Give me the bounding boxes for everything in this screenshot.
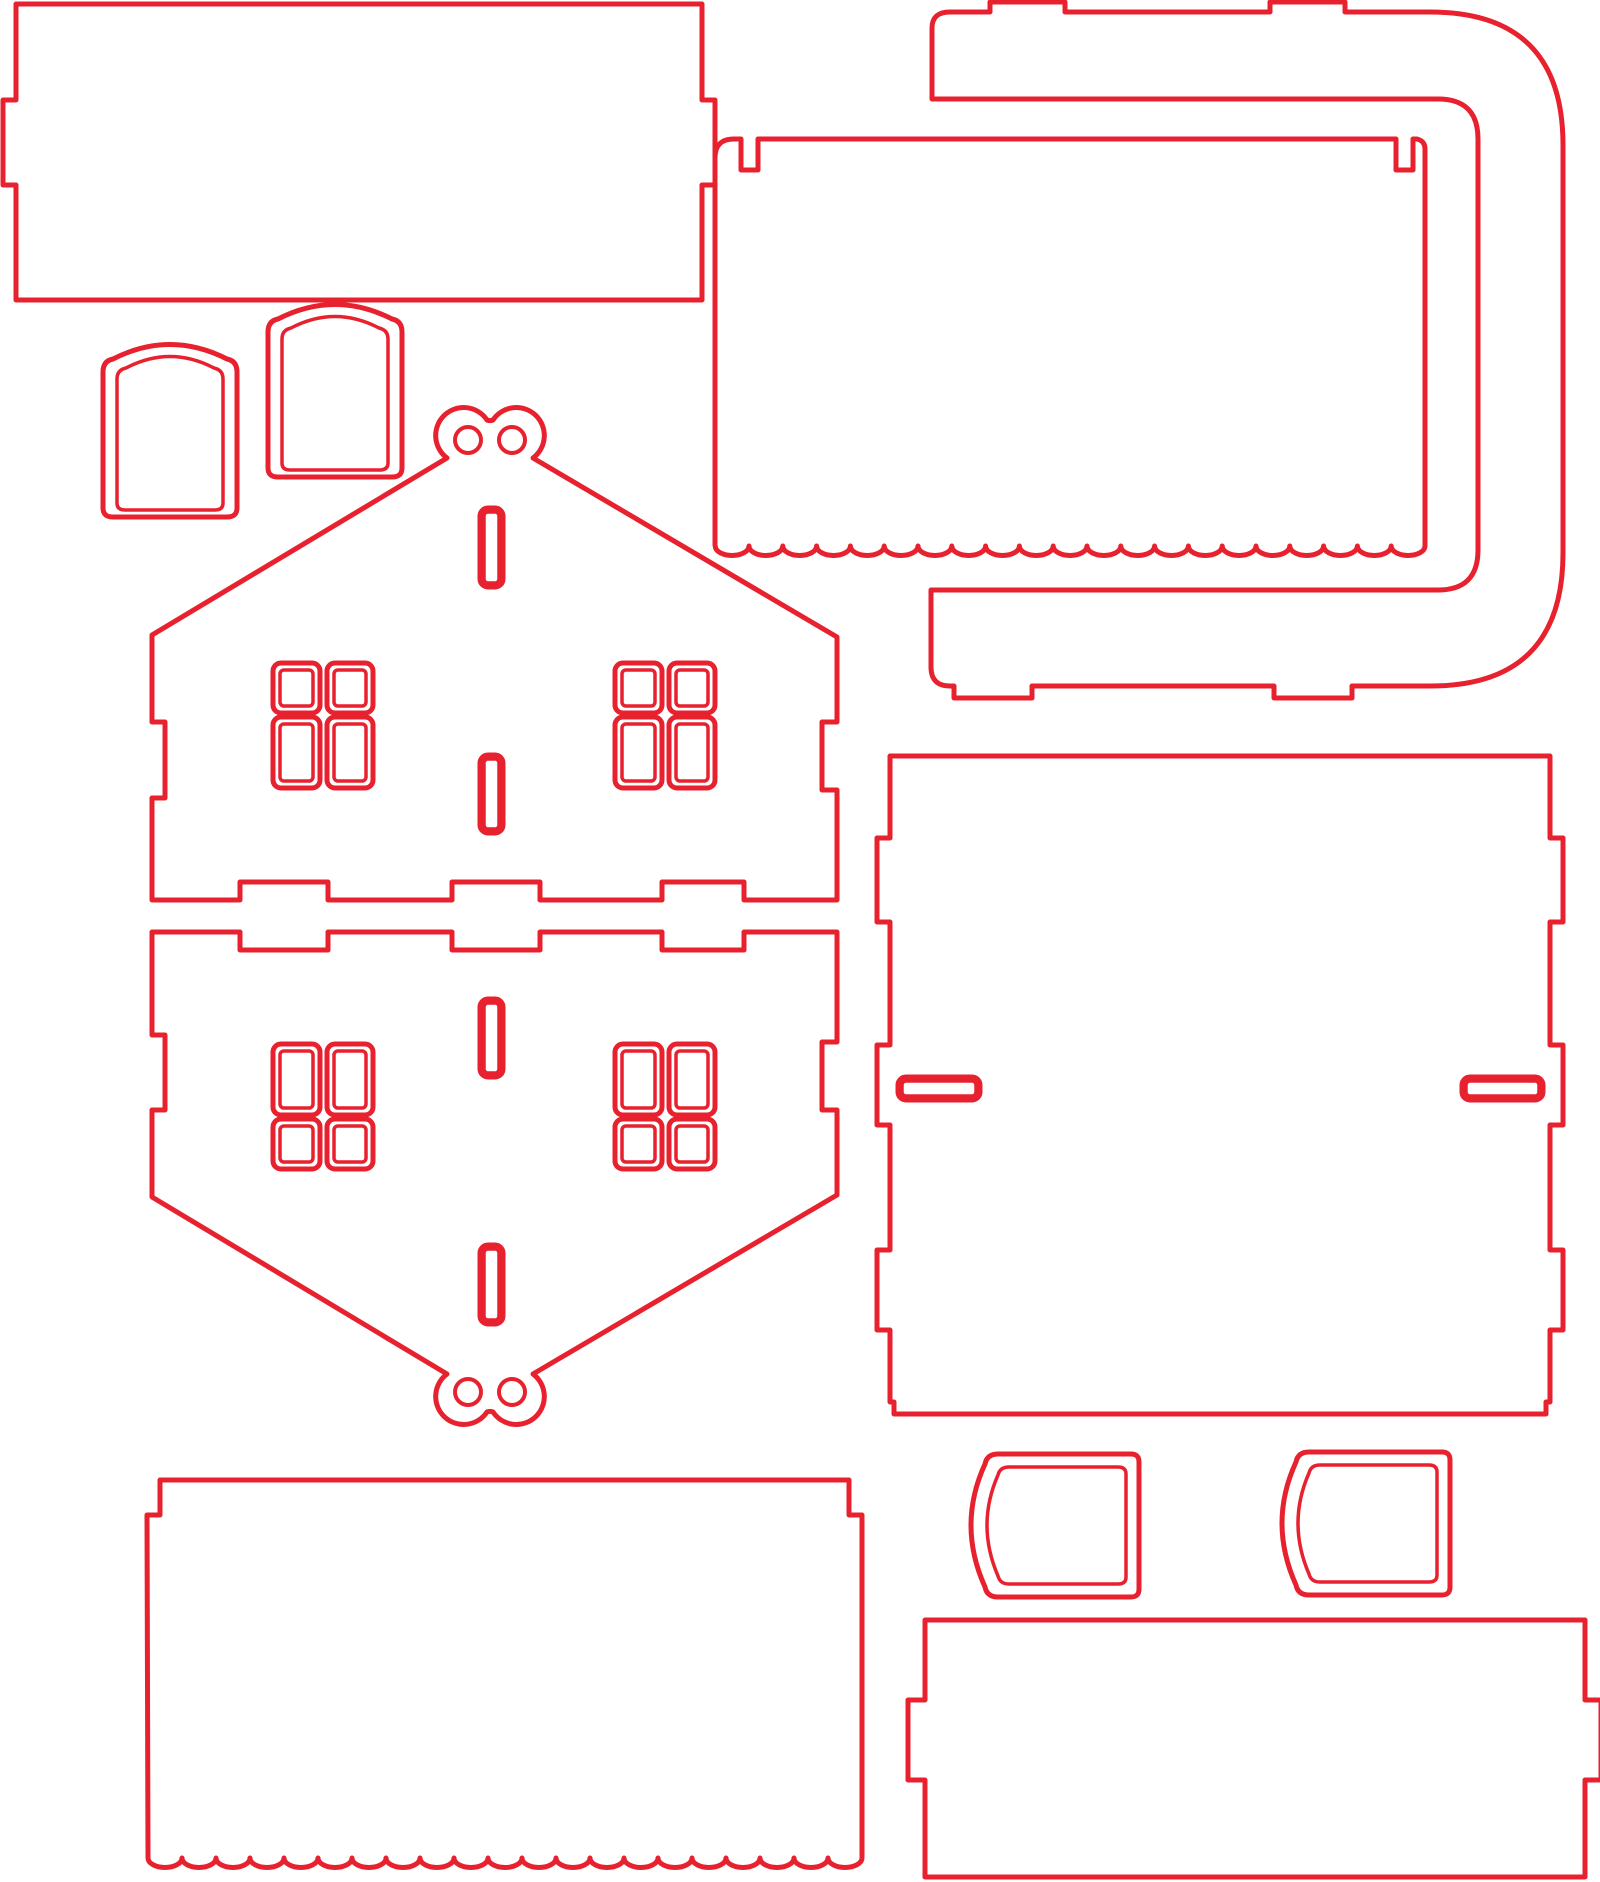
front-wall-window-pane-inner-line [676, 670, 708, 706]
back-wall-window-pane-inner-line [280, 1126, 313, 1162]
back-wall-window-pane-inner-line [334, 1051, 366, 1108]
house-back-wall [152, 932, 837, 1424]
front-wall-window-pane-inner-line [676, 724, 708, 781]
cutting-template-page [0, 0, 1600, 1882]
base-panel-right-slot-inner-line [1466, 1081, 1539, 1096]
back-wall-center-slot-inner-line [484, 1003, 499, 1073]
back-wall-window-pane-inner-line [622, 1126, 655, 1162]
front-wall-window-pane-inner-line [334, 724, 366, 781]
house-front-wall [152, 408, 837, 900]
back-wall-window-pane-inner-line [676, 1051, 708, 1108]
front-wall-window-pane-inner-line [622, 724, 655, 781]
roof-panel-bottom [147, 1480, 862, 1868]
window-awning-right-inner-line [1298, 1465, 1437, 1582]
back-wall-hanging-hole [455, 1379, 481, 1405]
back-wall-hanging-hole [499, 1379, 525, 1405]
cutting-template-canvas [0, 0, 1600, 1882]
curved-roof-bracket [931, 2, 1563, 698]
front-wall-window-pane-inner-line [280, 670, 313, 706]
door-blank-small-inner-line [117, 357, 223, 511]
back-wall-window-pane-inner-line [334, 1126, 366, 1162]
roof-panel-top [715, 139, 1425, 556]
window-awning-left-inner-line [987, 1467, 1126, 1584]
front-wall-hanging-hole [499, 427, 525, 453]
side-wall-panel [908, 1620, 1600, 1877]
front-wall-hanging-hole [455, 427, 481, 453]
back-wall-panel [3, 4, 715, 300]
door-blank-large-inner-line [282, 317, 388, 471]
front-wall-window-pane-inner-line [334, 670, 366, 706]
back-wall-window-pane-inner-line [622, 1051, 655, 1108]
back-wall-window-pane-inner-line [280, 1051, 313, 1108]
front-wall-center-slot-inner-line [484, 512, 499, 583]
front-wall-window-pane-inner-line [622, 670, 655, 706]
front-wall-window-pane-inner-line [280, 724, 313, 781]
back-wall-center-slot-inner-line [484, 1249, 499, 1320]
front-wall-center-slot-inner-line [484, 759, 499, 829]
base-panel-left-slot-inner-line [902, 1081, 976, 1096]
back-wall-window-pane-inner-line [676, 1126, 708, 1162]
